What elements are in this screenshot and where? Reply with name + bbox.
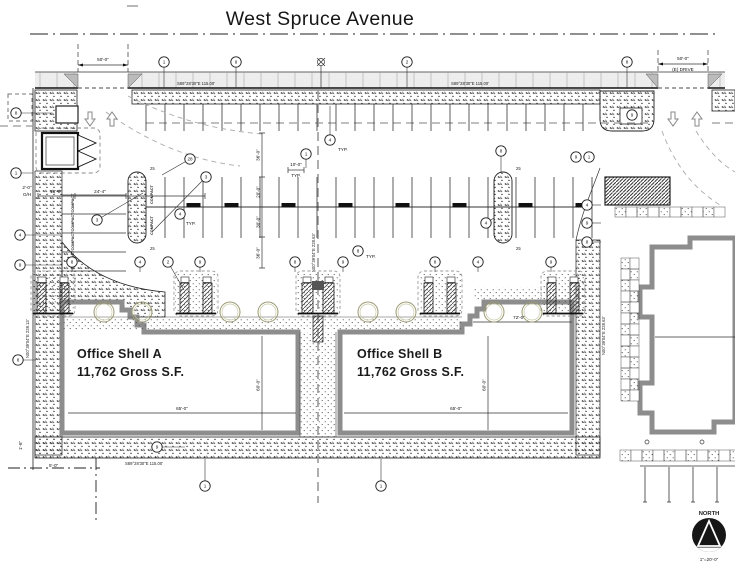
keynote-number: 8: [434, 260, 437, 265]
existing-trash-pad: [605, 177, 670, 205]
paver-tile: [621, 302, 630, 313]
entry-vestibule: [312, 281, 324, 290]
plaza-walk: [300, 332, 336, 437]
keynote-number: 9: [631, 113, 634, 118]
parking-island: [494, 172, 512, 243]
canopy-pad: [203, 277, 211, 283]
dim-stall: 10'-0": [290, 162, 302, 167]
wheel-stop: [282, 203, 296, 208]
canopy-column: [60, 283, 69, 313]
paver-tile: [621, 291, 630, 302]
canopy-column: [323, 283, 334, 313]
paver-tile: [621, 335, 630, 346]
canopy-column: [547, 283, 556, 313]
keynote-number: 8: [357, 249, 360, 254]
keynote-number: 9: [199, 260, 202, 265]
paver-tile: [670, 207, 681, 217]
drive-apron-right: [658, 72, 708, 88]
paver-tile: [630, 313, 639, 324]
keynote-number: 8: [294, 260, 297, 265]
paver-tile: [626, 207, 637, 217]
drive-apron-left: [78, 72, 128, 88]
bollard-icon: [645, 440, 649, 444]
paver-tile: [621, 357, 630, 368]
paver-tile: [675, 450, 686, 461]
north-scale: 1"=20'-0": [700, 557, 719, 562]
keynote-number: 8: [626, 60, 629, 65]
bearing-right: N00°39'04"E 228.63': [601, 316, 606, 355]
keynote-number: 8: [17, 358, 20, 363]
keynote-number: 9: [550, 260, 553, 265]
canopy-pad: [38, 277, 46, 283]
dim-building-b-width: 65'-0": [450, 406, 462, 411]
keynote-number: 9: [19, 263, 22, 268]
building-a-name: Office Shell A: [77, 347, 162, 361]
site-plan-sheet: West Spruce Avenue S89°28'30"E 115.00' S…: [0, 0, 735, 569]
canopy-column: [302, 283, 313, 313]
canopy-column: [180, 283, 189, 313]
transformer-pad: [56, 106, 78, 123]
paver-tile: [637, 207, 648, 217]
dim-drive-right: 50'-0": [677, 56, 689, 61]
arrow-in-icon: [85, 112, 95, 126]
dim-drive-left: 50'-0": [97, 57, 109, 62]
keynote-number: 8: [15, 111, 18, 116]
paver-tile: [630, 291, 639, 302]
keynote-number: 9: [235, 60, 238, 65]
canopy-pad: [447, 277, 455, 283]
street: West Spruce Avenue: [30, 6, 716, 34]
site-plan-drawing: West Spruce Avenue S89°28'30"E 115.00' S…: [0, 0, 735, 569]
dim-compact-depth: 18'-0": [50, 189, 62, 194]
paver-tile: [630, 269, 639, 280]
dim-overhang-note: O/H: [23, 192, 31, 197]
dim-stall-typ: TYP.: [291, 173, 301, 178]
canopy-pad: [325, 277, 333, 283]
dim-corner-a: 1'-6": [18, 440, 23, 450]
bearing-bottom: S89°28'30"E 115.00': [125, 461, 163, 466]
paver-tile: [648, 207, 659, 217]
paver-tile: [692, 207, 703, 217]
paver-tile: [642, 450, 653, 461]
keynote-number: 4: [485, 221, 488, 226]
paver-tile: [621, 258, 630, 269]
bearing-top-right: S89°28'30"E 115.00': [451, 81, 489, 86]
keynote-number: 9: [586, 221, 589, 226]
paver-tile: [630, 379, 639, 390]
canopy-pad: [570, 277, 578, 283]
paver-tile: [620, 450, 631, 461]
north-band: [690, 548, 728, 553]
paver-tile: [630, 346, 639, 357]
paver-tile: [697, 450, 708, 461]
paver-tile: [630, 335, 639, 346]
keynote-number: 1: [305, 152, 308, 157]
enclosure-walls: [42, 133, 78, 169]
canopy-pad: [425, 277, 433, 283]
wheel-stop: [396, 203, 410, 208]
keynote-number: 9: [575, 155, 578, 160]
canopy-column: [424, 283, 433, 313]
parking-island: [128, 172, 146, 243]
keynote-number: 4: [179, 212, 182, 217]
paver-tile: [708, 450, 719, 461]
building-b-area: 11,762 Gross S.F.: [357, 365, 464, 379]
paver-tile: [653, 450, 664, 461]
dim-drive-right-note: (E) DRIVE: [672, 67, 693, 72]
paver-tile: [719, 450, 730, 461]
paver-tile: [730, 450, 735, 461]
canopy-column: [447, 283, 456, 313]
keynote-number: 3: [96, 218, 99, 223]
keynote-number: 4: [477, 260, 480, 265]
building-a-area: 11,762 Gross S.F.: [77, 365, 184, 379]
dim-chain-2: 30'-0": [256, 216, 261, 228]
island-note: 25: [516, 166, 521, 171]
keynote-number: 1: [163, 60, 166, 65]
gate-leaf: [78, 151, 96, 167]
keynote-number: 1: [588, 155, 591, 160]
paver-tile: [681, 207, 692, 217]
paver-tile: [621, 280, 630, 291]
wheel-stop: [339, 203, 353, 208]
canopy-column: [37, 283, 46, 313]
paver-tile: [621, 269, 630, 280]
wheel-stop: [519, 203, 533, 208]
compact-stall-label: COMPACT: [71, 212, 75, 232]
keynote-number: 1: [380, 484, 383, 489]
paver-tile: [703, 207, 714, 217]
drive-dimensions: 50'-0" 50'-0" (E) DRIVE: [78, 44, 708, 72]
keynote-number: 8: [586, 240, 589, 245]
canopy-column: [570, 283, 579, 313]
paver-tile: [630, 280, 639, 291]
street-title: West Spruce Avenue: [226, 8, 415, 30]
paver-tile: [686, 450, 697, 461]
paver-tile: [664, 450, 675, 461]
gate-leaf: [78, 135, 96, 151]
canopy-pad: [548, 277, 556, 283]
arrow-in-icon: [668, 112, 678, 126]
planter: [712, 90, 735, 111]
paver-tile: [659, 207, 670, 217]
paver-tile: [631, 450, 642, 461]
keynote-number: 4: [19, 233, 22, 238]
covered-walk: [313, 316, 323, 342]
paver-tile: [630, 324, 639, 335]
canopy-pad: [303, 277, 311, 283]
bollard-icon: [700, 440, 704, 444]
paver-tile: [630, 390, 639, 401]
canopy-column: [203, 283, 212, 313]
keynote-number: 4: [329, 138, 332, 143]
keynote-number: 9: [156, 445, 159, 450]
island-note: 25: [516, 246, 521, 251]
planter-strip-right: [576, 240, 600, 455]
typ-note: TYP.: [366, 254, 376, 259]
turn-guide-arc: [662, 131, 720, 205]
keynote-number: 2: [406, 60, 409, 65]
paver-tile: [630, 302, 639, 313]
compact-stall-label: COMPACT: [71, 231, 75, 251]
wheel-stop: [225, 203, 239, 208]
typ-note: TYP.: [186, 221, 196, 226]
paver-tile: [621, 313, 630, 324]
keynote-number: 4: [586, 203, 589, 208]
keynote-number: 28: [187, 157, 193, 162]
wheel-stop: [187, 203, 201, 208]
paver-tile: [621, 390, 630, 401]
north-label: NORTH: [699, 511, 720, 517]
canopy-pad: [181, 277, 189, 283]
building-b-name: Office Shell B: [357, 347, 442, 361]
existing-building-walls: [640, 238, 735, 432]
bearing-center: N00°39'04"E 228.63': [311, 233, 316, 272]
compact-stall-label: COMPACT: [150, 215, 154, 235]
island-note: 25: [150, 246, 155, 251]
paver-tile: [621, 324, 630, 335]
existing-parking-stalls: [643, 467, 719, 502]
north-arrow: NORTH 1"=20'-0": [690, 511, 728, 562]
paver-tile: [630, 258, 639, 269]
dim-aisle: 24'-4": [94, 189, 106, 194]
paver-tile: [630, 357, 639, 368]
keynote-number: 1: [204, 484, 207, 489]
island-note: 25: [150, 166, 155, 171]
keynote-number: 8: [71, 260, 74, 265]
compact-stall-label: COMPACT: [150, 184, 154, 204]
turn-guide-arc: [696, 131, 735, 172]
keynote-number: 4: [139, 260, 142, 265]
keynote-number: 3: [205, 175, 208, 180]
paver-tile: [615, 207, 626, 217]
keynote-number: 8: [500, 149, 503, 154]
sidewalk-joints: [40, 72, 720, 88]
arrow-out-icon: [692, 112, 702, 126]
bearing-left: N00°39'04"E 228.13': [25, 319, 30, 358]
bearing-top-left: S89°28'30"E 115.00': [177, 81, 215, 86]
paver-tile: [621, 368, 630, 379]
paver-tile: [714, 207, 725, 217]
dim-chain-3: 36'-0": [256, 247, 261, 259]
dim-building-b-depth: 60'-0": [482, 379, 487, 391]
dim-corner-b: 5'-0": [49, 463, 59, 468]
keynote-number: 1: [15, 171, 18, 176]
planter-strip-top: [132, 90, 600, 104]
wheel-stop: [453, 203, 467, 208]
paver-tile: [621, 346, 630, 357]
keynote-number: 9: [342, 260, 345, 265]
paver-tile: [630, 368, 639, 379]
keynote-number: 2: [167, 260, 170, 265]
dim-building-a-width: 65'-0": [176, 406, 188, 411]
dim-building-a-depth: 60'-0": [256, 379, 261, 391]
paver-tile: [621, 379, 630, 390]
dim-chain-1: 20'-0": [256, 186, 261, 198]
turn-guide-arc: [106, 112, 240, 166]
dim-chain-0: 36'-0": [256, 149, 261, 161]
dim-overhang: 2'-0": [22, 185, 32, 190]
typ-note: TYP.: [338, 147, 348, 152]
canopy-pad: [60, 277, 68, 283]
existing-building: [605, 177, 735, 502]
